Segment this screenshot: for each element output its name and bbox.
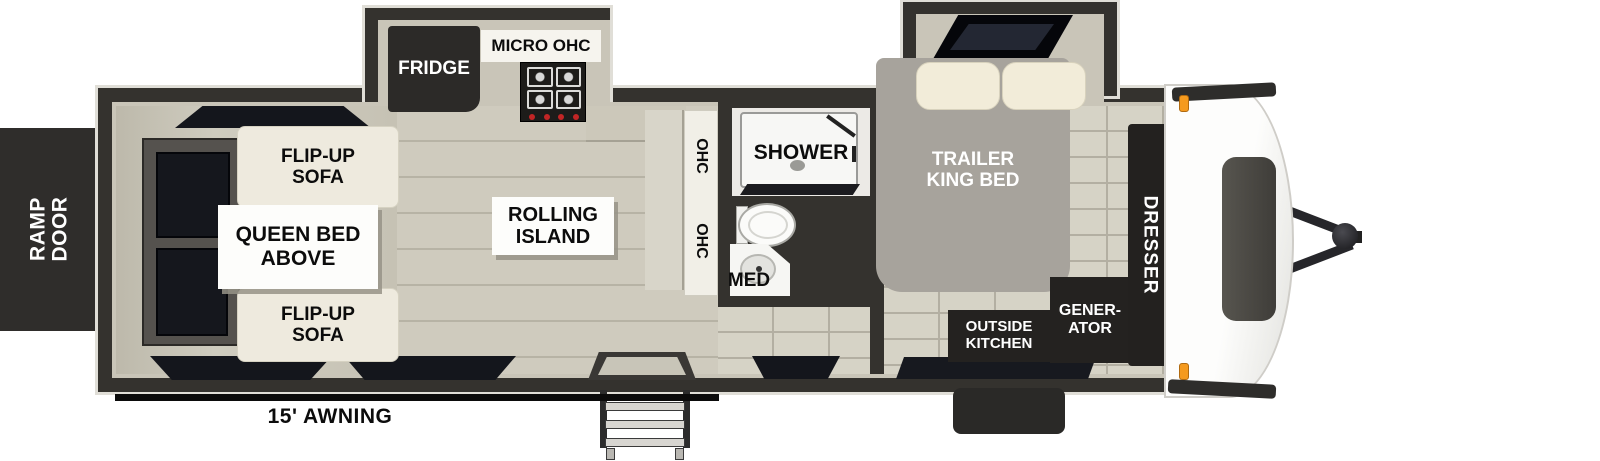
awning-line: [115, 394, 719, 401]
step-foot: [606, 448, 615, 460]
flip-up-sofa-top: FLIP-UP SOFA: [237, 126, 399, 208]
generator-box: GENER- ATOR: [1050, 277, 1130, 363]
shower-label: SHOWER: [754, 141, 849, 165]
knob-icon: [558, 114, 564, 120]
floorplan: RAMP DOOR FLIP-UP SOFA FLIP-UP SOFA QUEE…: [0, 0, 1600, 461]
dresser-label: DRESSER: [1138, 196, 1160, 295]
generator-label: GENER- ATOR: [1059, 302, 1121, 338]
toilet-seat-line: [748, 211, 788, 239]
queen-bed-above-label: QUEEN BED ABOVE: [236, 223, 361, 270]
ohc-lower-label: OHC: [692, 223, 710, 259]
awning-label: 15' AWNING: [268, 405, 393, 429]
tall-cabinet: [645, 110, 684, 290]
rolling-island: ROLLING ISLAND: [492, 197, 614, 255]
outside-kitchen-label: OUTSIDE KITCHEN: [966, 319, 1033, 353]
knob-icon: [544, 114, 550, 120]
step-foot: [675, 448, 684, 460]
king-bed-label: TRAILER KING BED: [927, 149, 1020, 192]
burner-icon: [556, 90, 582, 110]
burner-icon: [527, 90, 553, 110]
entry-door-sill: [598, 357, 686, 375]
ramp-door-label: RAMP DOOR: [27, 197, 71, 262]
flip-up-sofa-bottom-label: FLIP-UP SOFA: [281, 304, 355, 347]
cooktop-burners: [527, 67, 581, 109]
propane-cover: [1222, 157, 1276, 321]
ohc-lower: OHC: [685, 206, 717, 276]
flip-up-sofa-bottom: FLIP-UP SOFA: [237, 288, 399, 362]
pillow-right: [1002, 62, 1086, 110]
marker-light-top-icon: [1179, 95, 1189, 112]
king-bed-label-wrap: TRAILER KING BED: [886, 142, 1060, 198]
med-label-wrap: MED: [720, 268, 778, 294]
step-tread: [605, 438, 685, 447]
exterior-storage-box: [953, 388, 1065, 434]
ohc-upper: OHC: [685, 121, 717, 191]
cooktop: [520, 62, 586, 122]
marker-light-bottom-icon: [1179, 363, 1189, 380]
knob-icon: [529, 114, 535, 120]
outside-kitchen-box: OUTSIDE KITCHEN: [948, 310, 1050, 362]
step-tread: [605, 402, 685, 411]
queen-bed-above-box: QUEEN BED ABOVE: [218, 205, 378, 289]
flip-up-sofa-top-label: FLIP-UP SOFA: [281, 146, 355, 189]
ramp-door-block: RAMP DOOR: [0, 128, 98, 331]
fridge: FRIDGE: [388, 26, 480, 112]
micro-ohc-label: MICRO OHC: [491, 36, 590, 56]
ohc-cabinet-column: OHC OHC: [684, 110, 718, 296]
burner-icon: [527, 67, 553, 87]
bedroom-divider-wall: [870, 307, 884, 374]
micro-ohc-box: MICRO OHC: [481, 30, 601, 62]
step-tread: [605, 420, 685, 429]
med-label: MED: [728, 270, 770, 292]
burner-icon: [556, 67, 582, 87]
hallway-bottom-window: [752, 356, 840, 379]
hitch-coupler-icon: [1332, 223, 1358, 249]
garage-top-window: [175, 106, 371, 128]
shower-label-wrap: SHOWER: [736, 138, 866, 168]
ohc-upper-label: OHC: [692, 138, 710, 174]
fridge-label: FRIDGE: [398, 58, 470, 80]
knob-icon: [573, 114, 579, 120]
pillow-left: [916, 62, 1000, 110]
rolling-island-label: ROLLING ISLAND: [508, 204, 598, 249]
shower-glass-door: [740, 184, 860, 195]
awning-label-wrap: 15' AWNING: [210, 403, 450, 431]
cooktop-knobs: [525, 113, 583, 121]
